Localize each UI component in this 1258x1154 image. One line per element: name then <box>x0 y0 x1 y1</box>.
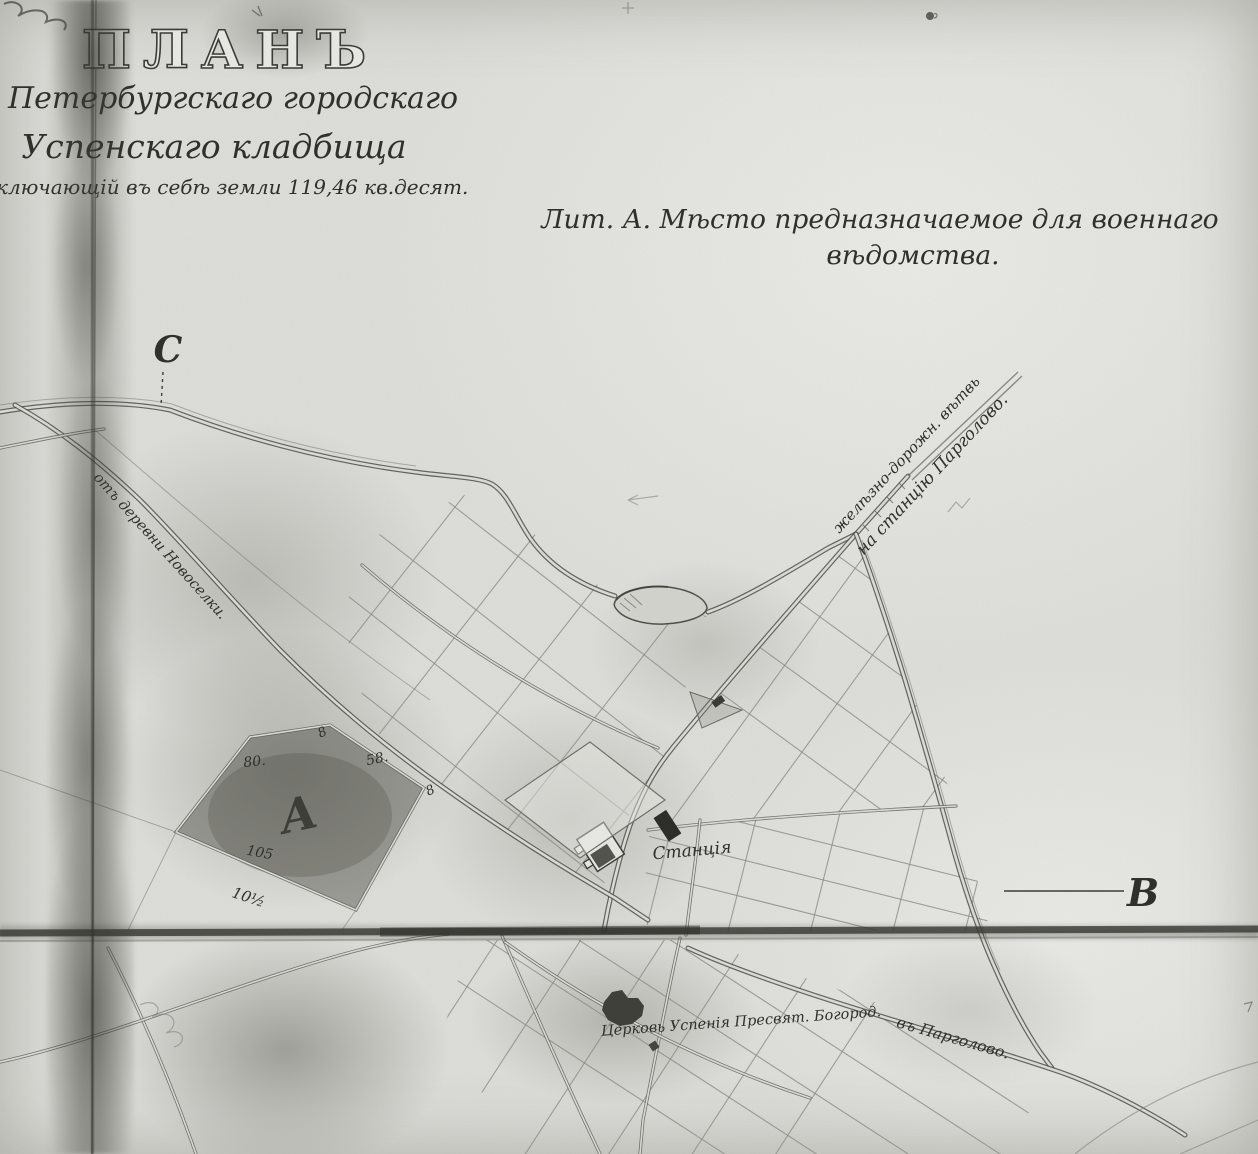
map-drawing: ПЛАНЪ С. Петербургскаго городскаго Успен… <box>0 0 1258 1154</box>
scanned-map-page: ПЛАНЪ С. Петербургскаго городскаго Успен… <box>0 0 1258 1154</box>
paper-grain <box>0 0 1258 1154</box>
